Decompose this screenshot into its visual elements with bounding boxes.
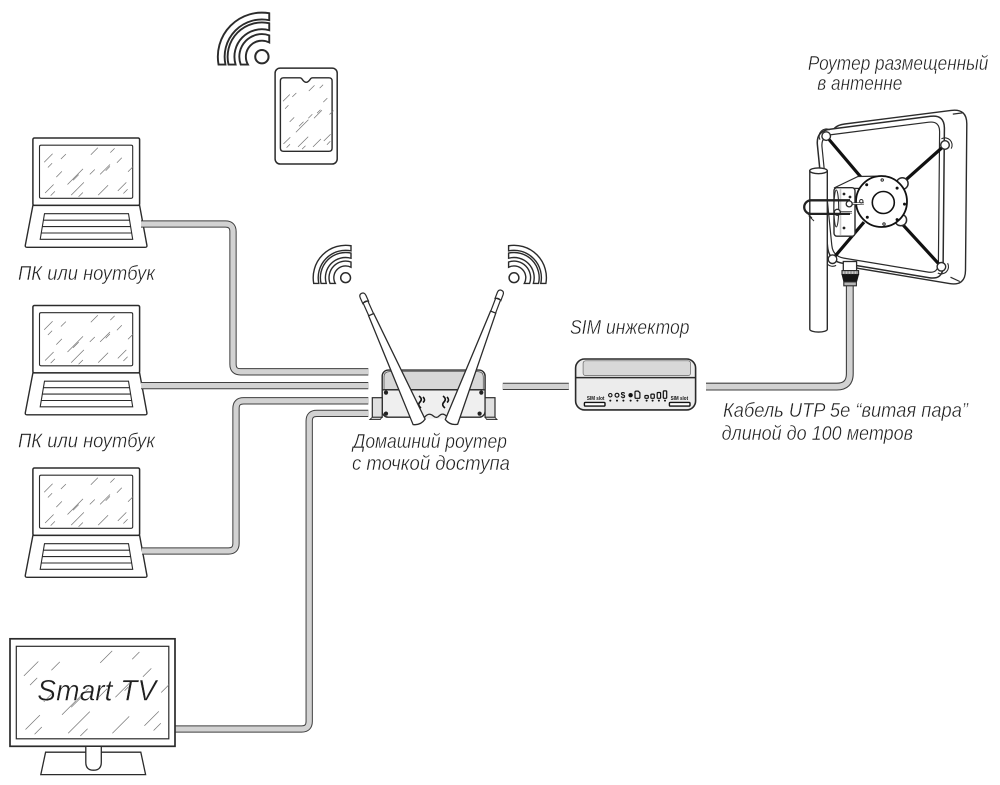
svg-text:ПК или ноутбук: ПК или ноутбук [18,262,156,285]
svg-text:SIM slot: SIM slot [587,396,605,402]
svg-text:с точкой доступа: с точкой доступа [352,452,510,475]
svg-text:в антенне: в антенне [817,72,902,95]
svg-text:Smart TV: Smart TV [37,674,158,707]
svg-text:Кабель UTP 5е “витая пара”: Кабель UTP 5е “витая пара” [723,399,969,422]
svg-text:$: $ [621,390,626,400]
svg-text:SIM slot: SIM slot [671,396,689,402]
svg-text:SIM инжектор: SIM инжектор [570,316,690,339]
svg-text:ПК или ноутбук: ПК или ноутбук [18,430,156,453]
svg-text:Домашний роутер: Домашний роутер [351,430,507,453]
svg-text:длиной до 100 метров: длиной до 100 метров [722,422,914,445]
